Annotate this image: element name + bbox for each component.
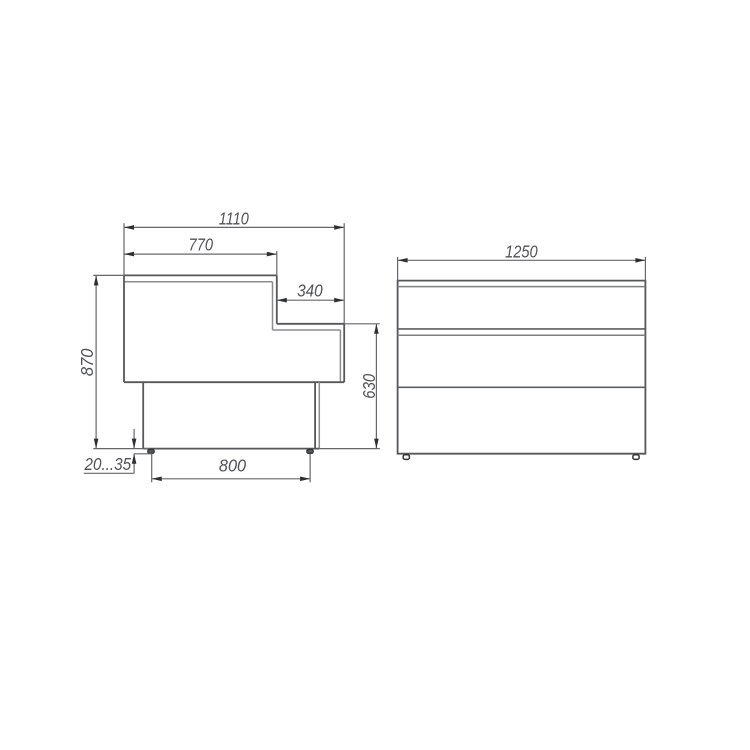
svg-text:770: 770 bbox=[189, 235, 214, 255]
svg-text:20...35: 20...35 bbox=[84, 454, 132, 474]
svg-text:1250: 1250 bbox=[505, 241, 538, 261]
svg-text:340: 340 bbox=[297, 281, 323, 301]
svg-text:800: 800 bbox=[219, 455, 246, 475]
svg-text:630: 630 bbox=[359, 374, 379, 399]
svg-text:1110: 1110 bbox=[219, 209, 249, 229]
svg-text:870: 870 bbox=[77, 348, 97, 376]
